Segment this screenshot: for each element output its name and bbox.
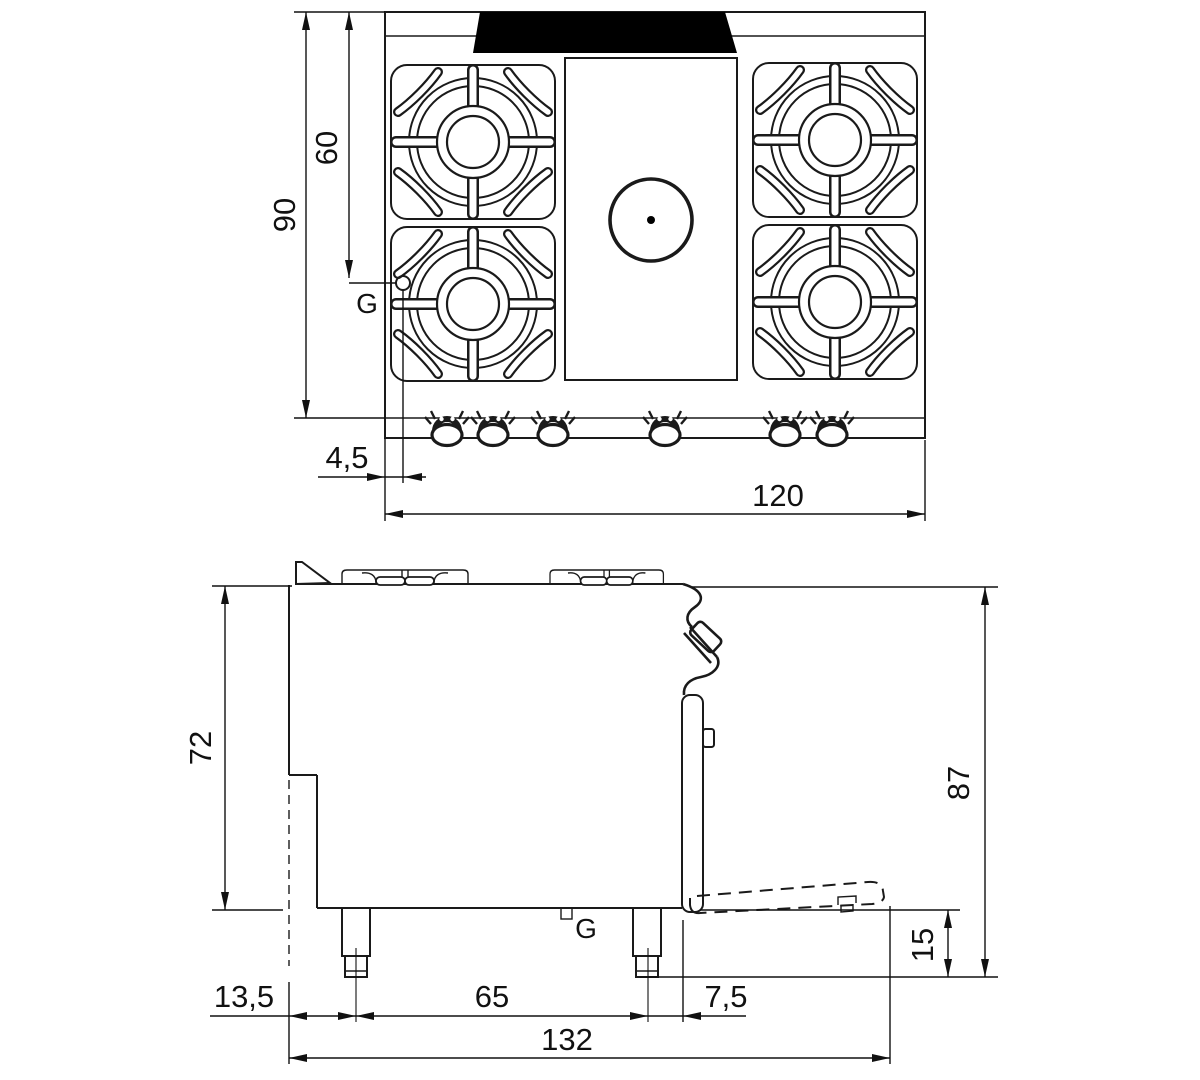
splash-guard: [473, 12, 737, 53]
oven-door-open-dashed: [690, 882, 884, 913]
control-knob-5: [763, 411, 807, 446]
dim-body-height: 72: [183, 731, 218, 765]
burner-grate-front-left: [391, 227, 555, 381]
burner-grate-back-left: [391, 65, 555, 219]
fascia-profile: [683, 584, 723, 695]
dim-leg-to-front: 7,5: [704, 979, 747, 1014]
gas-connection-mark-top: [396, 276, 410, 290]
burner-grate-front-right: [753, 225, 917, 379]
leg-front: [633, 908, 661, 977]
gas-connection-mark-side: [561, 908, 572, 919]
gas-label-side: G: [575, 913, 597, 944]
control-knob-1: [425, 411, 469, 446]
drawing-canvas: 90 60 G 4,5 120 72: [0, 0, 1200, 1080]
dimensions-side-view: 72 87 15 13,5 65 7,5 132 G: [183, 586, 998, 1064]
hot-plate-center-dot: [647, 216, 655, 224]
dim-gas-offset: 4,5: [325, 440, 368, 475]
gas-label-top: G: [356, 288, 378, 319]
control-knob-4: [643, 411, 687, 446]
dim-total-height: 87: [941, 766, 976, 800]
technical-drawing: 90 60 G 4,5 120 72: [0, 0, 1200, 1080]
hot-plate: [565, 58, 737, 380]
door-handle: [703, 729, 714, 747]
dim-burner-offset: 60: [309, 131, 344, 165]
dim-plinth-height: 15: [905, 928, 940, 962]
grate-side-profile-right: [550, 570, 663, 585]
dim-width: 120: [752, 478, 804, 513]
dim-depth-door-open: 132: [541, 1022, 593, 1057]
control-knob-6: [810, 411, 854, 446]
dim-depth: 90: [267, 198, 302, 232]
grate-side-profile-left: [342, 570, 468, 585]
backsplash-profile: [296, 562, 330, 584]
control-knobs-row: [425, 411, 854, 446]
side-knob: [689, 620, 723, 654]
control-knob-2: [471, 411, 515, 446]
control-knob-3: [531, 411, 575, 446]
top-view: [385, 12, 925, 446]
dim-back-to-leg: 13,5: [214, 979, 274, 1014]
dim-leg-spacing: 65: [475, 979, 509, 1014]
burner-grate-back-right: [753, 63, 917, 217]
oven-door-closed: [682, 695, 714, 912]
